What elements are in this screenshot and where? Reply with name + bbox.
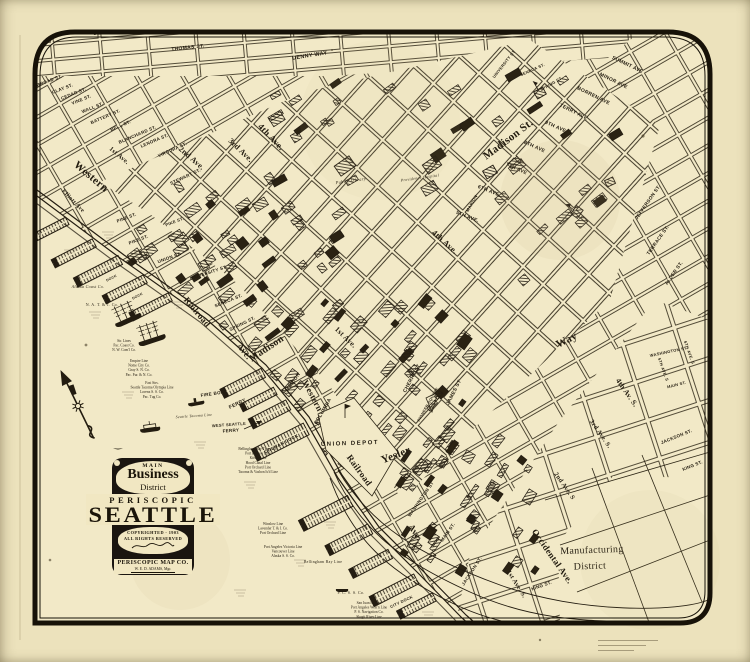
age-spot [331,49,333,51]
company-name: PERISCOPIC MAP CO. [114,560,192,566]
shipping-line: Tacoma & Vashon Is'd Line [238,470,278,474]
signature-flourish [130,541,176,551]
title-business: Business [116,467,190,483]
company-rule [131,572,175,573]
shipping-line: Kitsap Line [250,456,267,460]
cartouche-company-slot: PERISCOPIC MAP CO. W. E. D. ADAMS, Mgr. [114,559,192,574]
shipping-line: Vancouver Line [272,550,295,554]
age-spot [49,559,52,562]
shipping-line: P. S. Navigation Co. [354,610,383,614]
margin-note-line [598,640,658,641]
title-seattle: SEATTLE [79,502,226,528]
shipping-line: Pac. Coast Co. [113,344,134,348]
shipping-line: Pac. Tug Co. [143,395,162,399]
shipping-line: Lorenz S. S. Co. [140,390,164,394]
age-stain [300,40,460,200]
company-manager: W. E. D. ADAMS, Mgr. [114,567,192,571]
map-label: P. C. S. S. Co. [337,590,364,595]
shipping-line: Hood Canal Line [246,461,271,465]
age-spot [641,134,644,137]
age-spot [539,639,541,641]
periscopic-seattle-map: JOHN ST.THOMAS ST.DENNY WAYBROAD ST.CLAY… [0,0,750,662]
cartouche-oval-bottom: COPYRIGHTED - 1903 ALL RIGHTS RESERVED [118,527,188,554]
age-spot [85,344,88,347]
shipping-line: Gray S. N. Co. [128,368,149,372]
margin-note-line [598,650,634,651]
age-stain [500,140,620,260]
shipping-line: Nome City Co. [128,364,150,368]
shipping-line: Lavender T. & I. Co. [258,527,288,531]
shipping-line: Port Angeles Victoria Line [264,545,303,549]
cartouche-oval-top: MAIN Business District [116,461,190,494]
shipping-line: N. W. Com'l Co. [112,348,136,352]
shipping-line: Alaska S. S. Co. [271,554,295,558]
shipping-line: Port Angeles West'n Line [351,606,388,610]
shipping-line: Port Orchard Line [260,531,287,535]
shipping-line: Seattle Tacoma Olympia Line [131,386,174,390]
shipping-line: Bellingham Bay Trans. Co. [238,447,277,451]
shipping-line: San Juan Is. Line [357,601,382,605]
map-label: Alaska Coast Co. [71,284,105,289]
shipping-line: Pac. Fur. & N. Co. [126,373,153,377]
shipping-line: Port Blakely Line [245,452,271,456]
shipping-line: Port Orchard Line [245,465,272,469]
title-district: District [116,482,190,492]
margin-note-line [598,645,646,646]
age-stain [580,490,720,630]
shipping-line: Str. Lines [117,339,131,343]
shipping-line: Fast Strs. [145,381,158,385]
title-copyright: COPYRIGHTED - 1903 [118,530,188,535]
map-label: Bellingham Bay Line [304,560,342,564]
map-label: N. A. T. & T. Co. [86,302,119,307]
shipping-line: Empire Line [130,359,148,363]
shipping-line: Winslow Line [263,522,284,526]
cartouche-band: PERISCOPIC SEATTLE [86,494,220,525]
